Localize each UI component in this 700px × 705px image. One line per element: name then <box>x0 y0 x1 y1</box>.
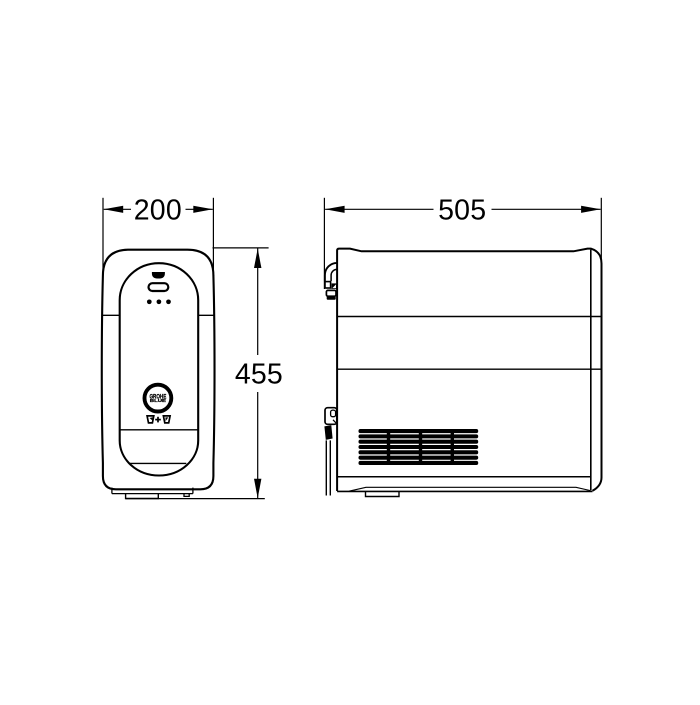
svg-text:505: 505 <box>438 195 486 227</box>
svg-text:200: 200 <box>134 195 182 227</box>
svg-text:455: 455 <box>235 359 283 391</box>
svg-text:BLUE: BLUE <box>150 398 167 403</box>
